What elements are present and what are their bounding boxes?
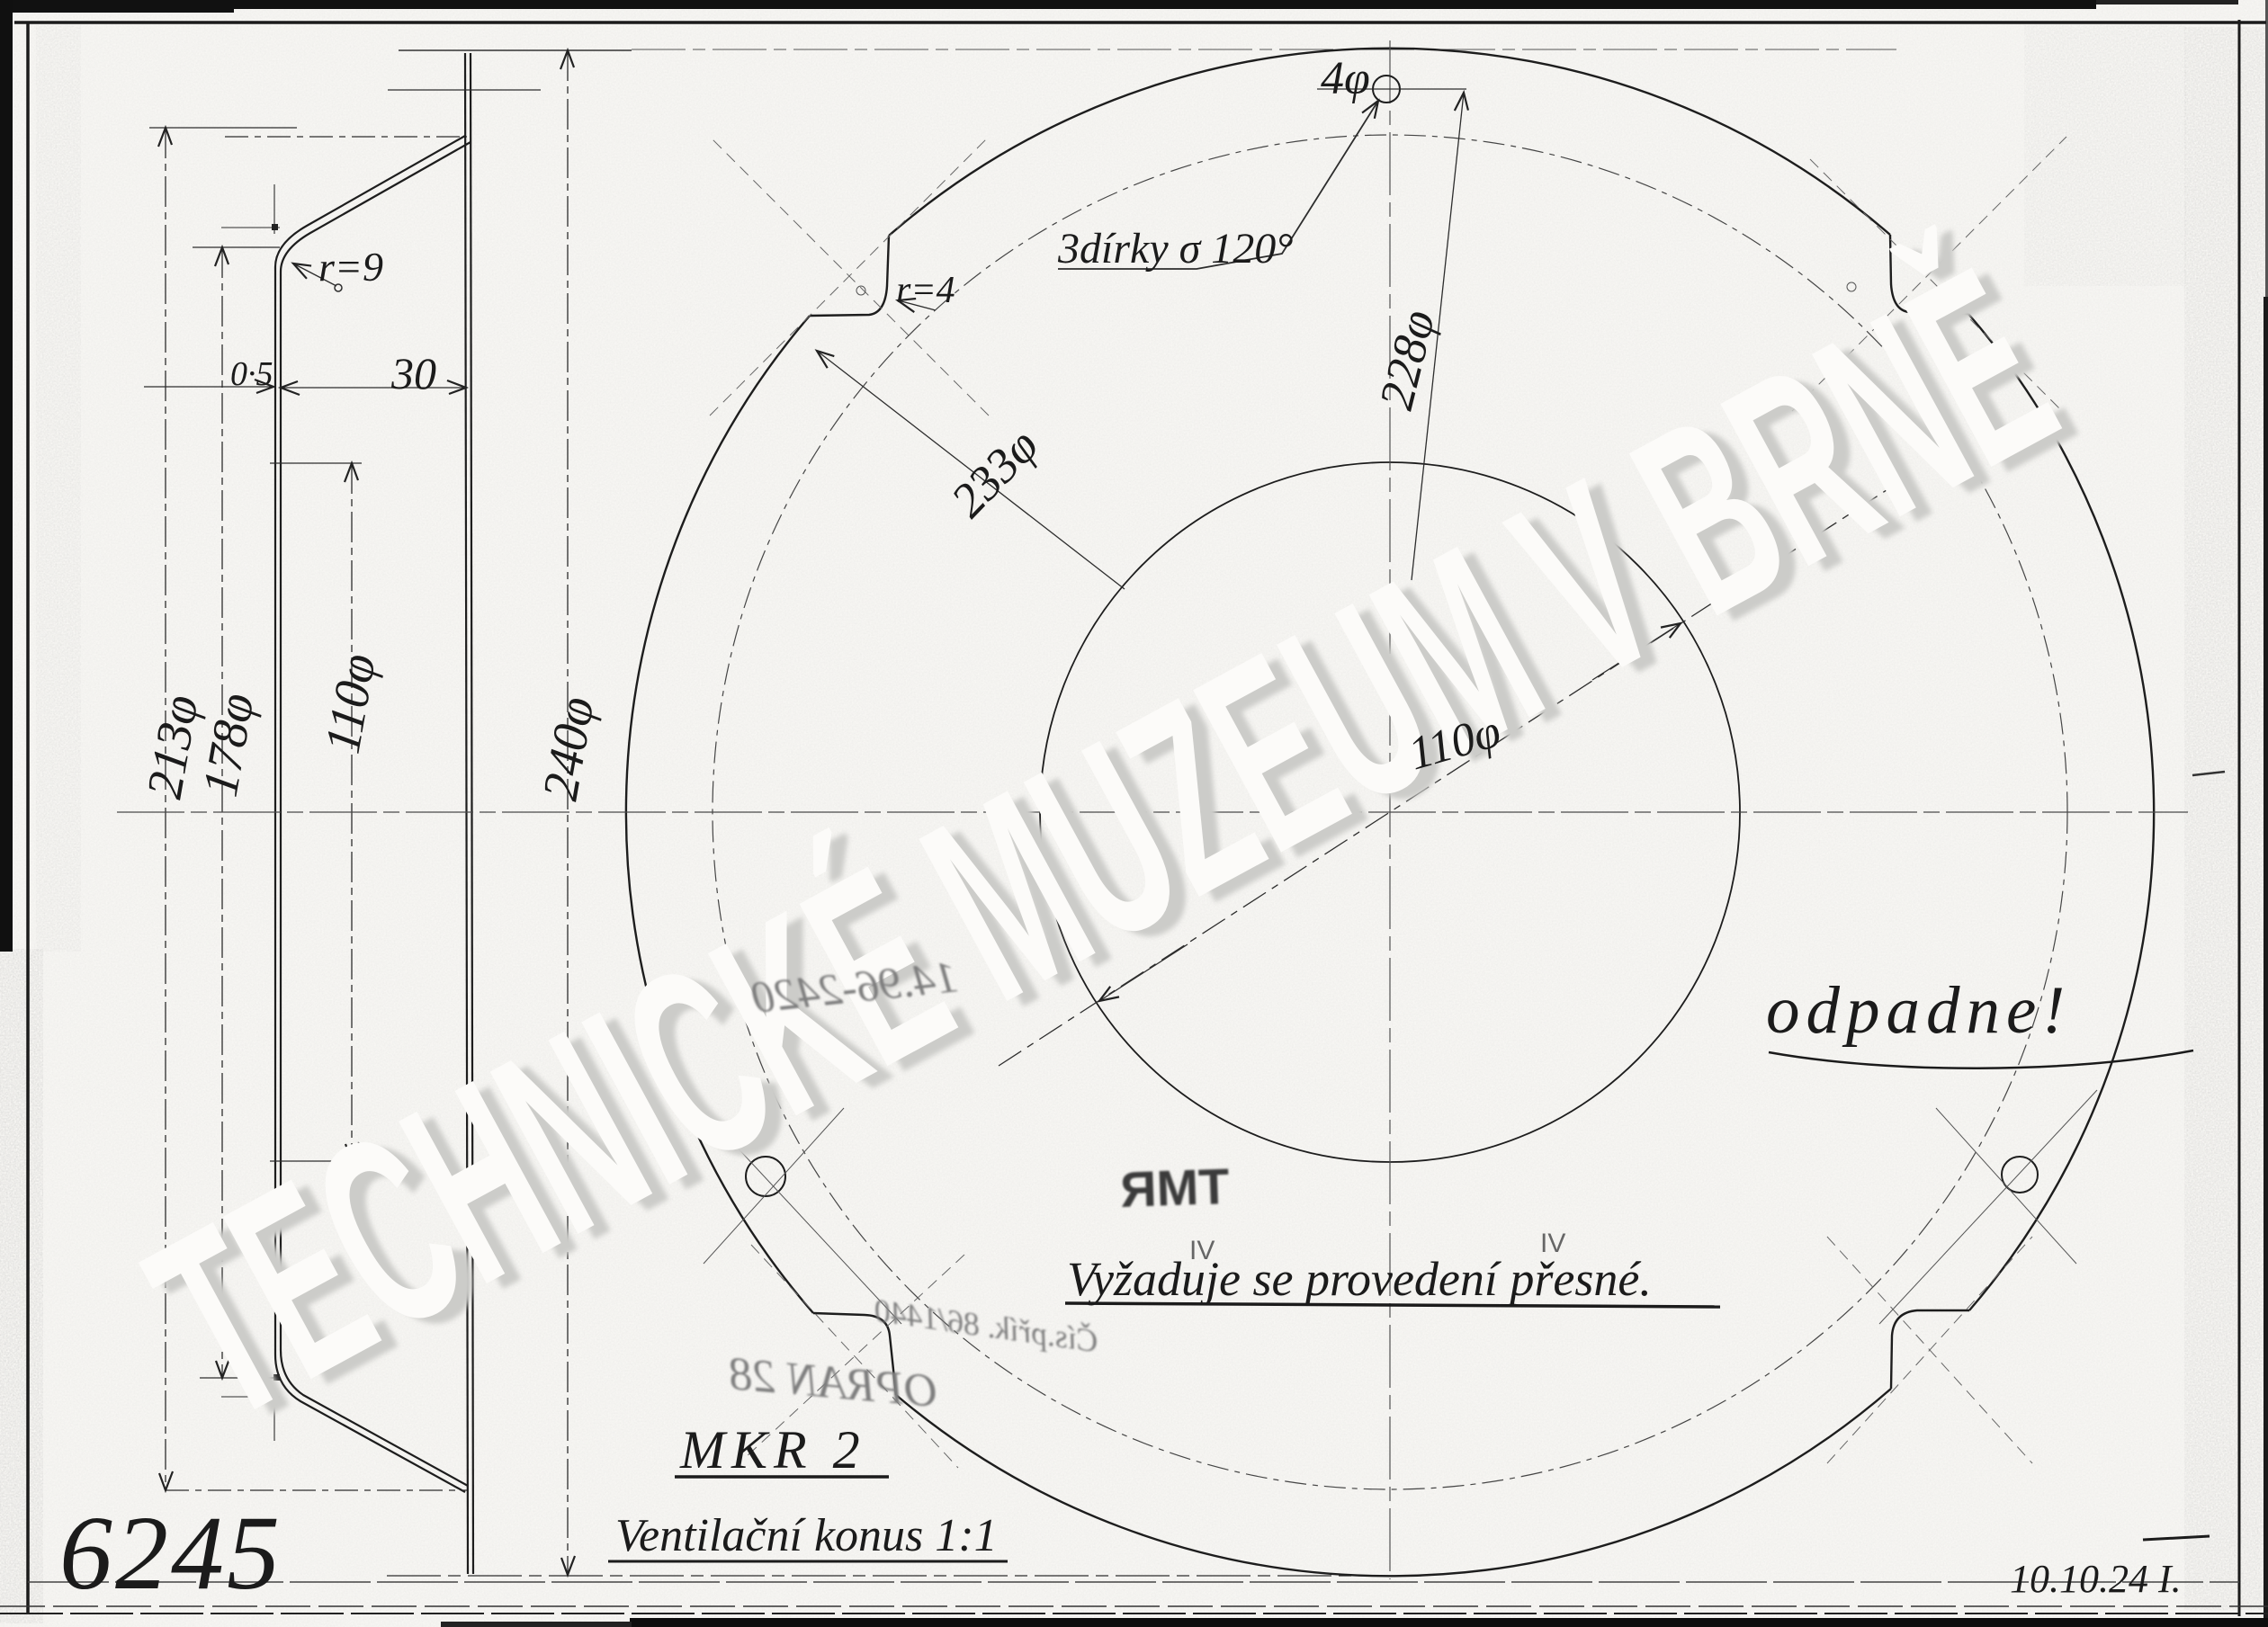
svg-text:30: 30 <box>390 348 436 398</box>
svg-text:r=9: r=9 <box>318 244 383 290</box>
svg-text:IV: IV <box>1189 1236 1215 1265</box>
svg-text:6245: 6245 <box>59 1494 282 1612</box>
svg-text:MKR 2: MKR 2 <box>679 1420 866 1479</box>
svg-text:3dírky σ 120°: 3dírky σ 120° <box>1057 225 1294 273</box>
svg-text:IV: IV <box>1540 1229 1565 1258</box>
svg-text:Ventilační konus 1:1: Ventilační konus 1:1 <box>615 1510 998 1561</box>
svg-text:Vyžaduje se provedení přesné.: Vyžaduje se provedení přesné. <box>1067 1252 1652 1306</box>
svg-text:r=4: r=4 <box>896 270 955 311</box>
svg-text:10.10.24 I.: 10.10.24 I. <box>2010 1557 2182 1601</box>
svg-text:ЯМТ: ЯМТ <box>1119 1158 1230 1218</box>
svg-text:odpadne!: odpadne! <box>1766 973 2071 1048</box>
svg-text:0·5: 0·5 <box>230 355 273 393</box>
svg-text:4φ: 4φ <box>1321 53 1370 104</box>
